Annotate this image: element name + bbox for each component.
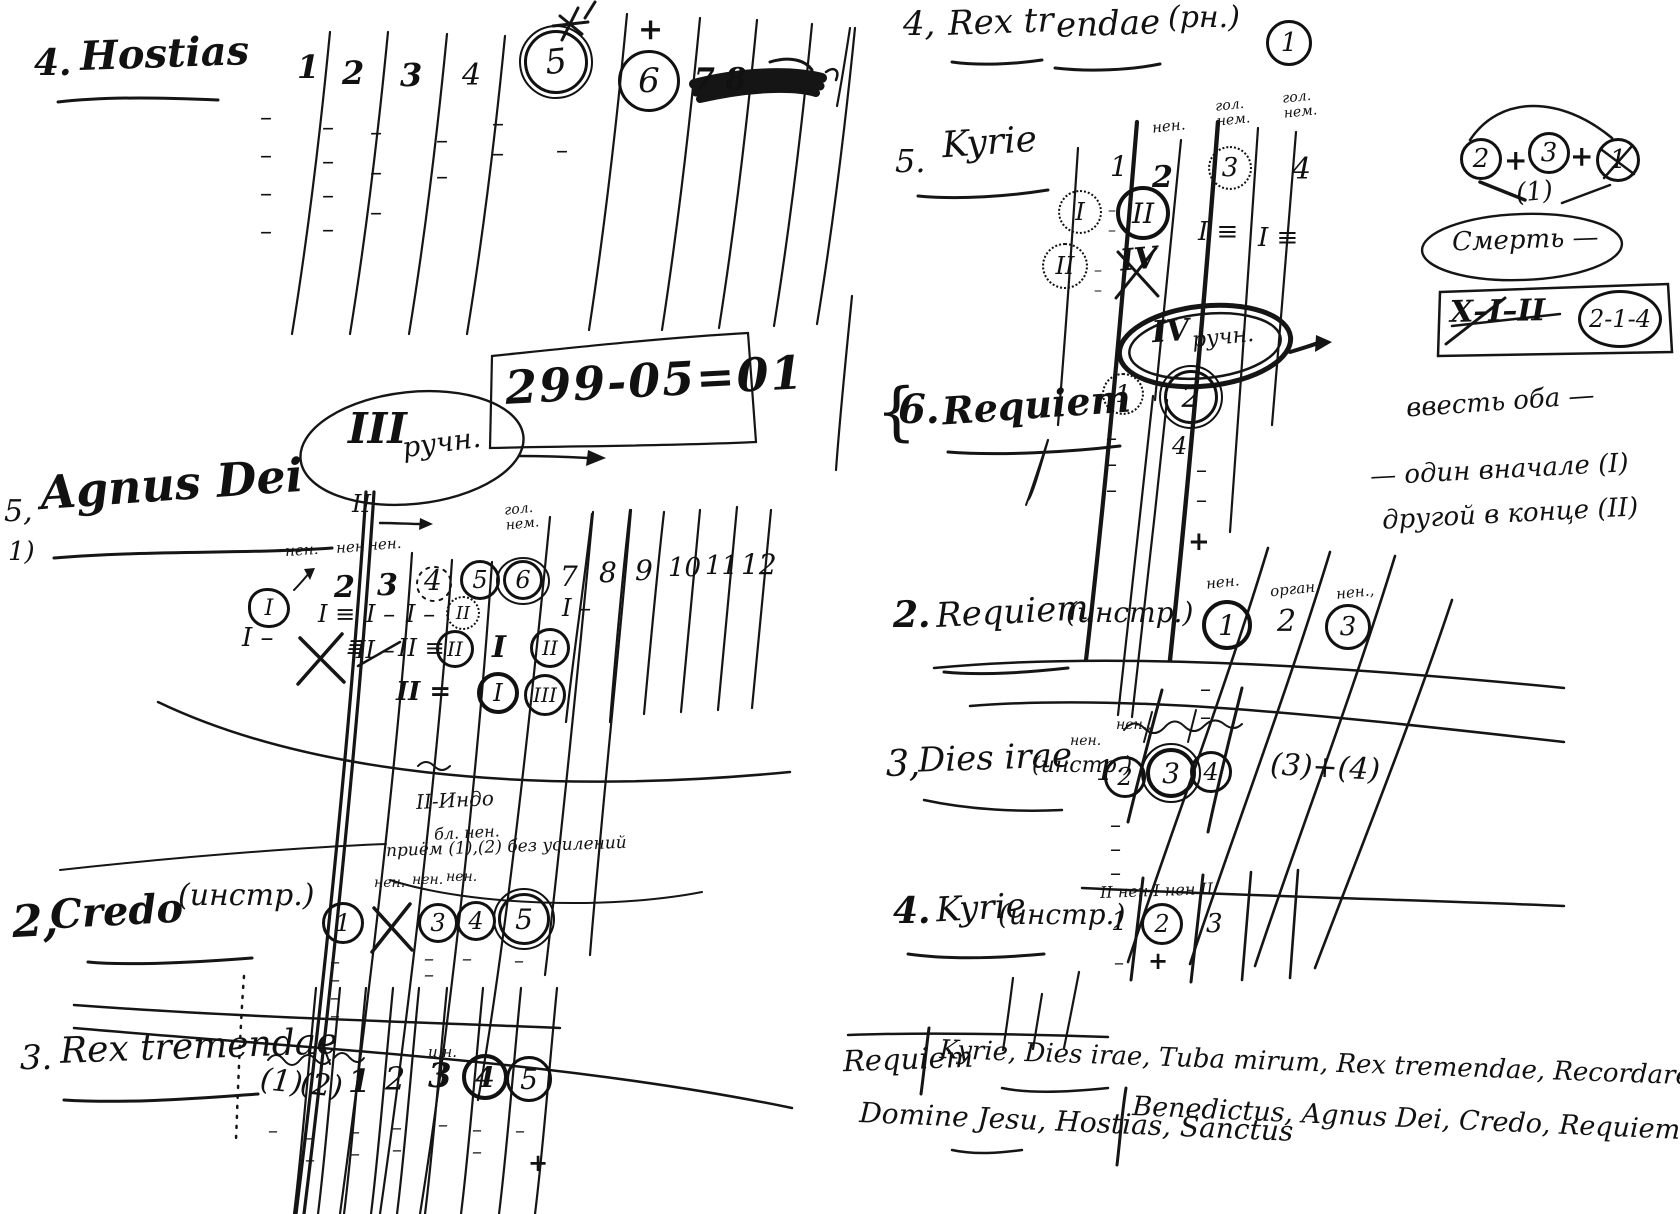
rex-item-6: 4 xyxy=(475,1061,494,1094)
credo-dashes-3: – – xyxy=(424,950,434,982)
mid-note-line1: II-Индо xyxy=(415,788,494,814)
kyrie5-mark-3: I ≡ xyxy=(1198,218,1238,246)
agnus-mark-7: I – xyxy=(562,596,591,622)
agnus-mark-5: I xyxy=(492,632,506,664)
rex4-badge-circled: 1 xyxy=(1266,20,1312,66)
agnus-bubble-I: I xyxy=(248,588,290,628)
credo-item-4-circled: 4 xyxy=(456,901,496,941)
dies3-extra: (3)+(4) xyxy=(1269,749,1381,787)
kyrie4-item-3: 3 xyxy=(1206,910,1223,938)
kyrie5-col-3: 3 xyxy=(1222,153,1239,183)
kyrie4-plus: + xyxy=(1148,948,1168,974)
agnus-col-5: 5 xyxy=(472,566,487,594)
credo-dashes-4: – xyxy=(462,948,472,970)
req6-dashes-1: – – – xyxy=(1106,426,1117,504)
kyrie4-paren: (инстр.) xyxy=(998,900,1125,930)
kyrie4-item-1: 1 xyxy=(1111,908,1128,936)
agnus-number-bottom: 1) xyxy=(8,538,35,566)
kyrie5-col-4: 4 xyxy=(1292,154,1311,186)
agnus-mark-45a-circled: II xyxy=(446,596,480,630)
req6-item-1: 1 xyxy=(1115,380,1130,408)
credo-label-1: нен. xyxy=(374,876,405,891)
rex-dashes-1: – xyxy=(268,1120,278,1142)
agnus-mark-2a: I ≡ xyxy=(318,602,355,628)
sum-b: 3 xyxy=(1541,138,1558,168)
death-label: Смерть — xyxy=(1452,223,1599,256)
hostias-col-3: 3 xyxy=(400,58,422,93)
kyrie5-number: 5. xyxy=(895,144,926,179)
dies3-item-2-circled: 2 xyxy=(1104,756,1146,798)
agnus-col-8: 8 xyxy=(599,558,617,588)
rex-item-2: (2) xyxy=(298,1068,344,1105)
rex-dashes-5: – xyxy=(438,1114,448,1136)
box-circle-sequence: 2-1-4 xyxy=(1578,290,1662,348)
hostias-col-2: 2 xyxy=(342,56,364,91)
credo-item-3: 3 xyxy=(430,909,445,937)
agnus-mark-4a: I – xyxy=(406,602,435,628)
hostias-dashes-6: – xyxy=(556,138,568,164)
rex-item-7-circled: 5 xyxy=(506,1056,552,1102)
agnus-mark-6-circled: III xyxy=(524,674,566,716)
kyrie5-label-2: нен. xyxy=(1151,116,1186,136)
agnus-col-9: 9 xyxy=(635,556,653,586)
dies3-item-3-circled: 3 xyxy=(1146,748,1196,798)
sum-a-circled: 2 xyxy=(1460,138,1502,180)
credo-title: Credo xyxy=(49,887,184,937)
rex-dashes-4: – – xyxy=(392,1116,402,1160)
hostias-dashes-3: – – – xyxy=(370,112,382,232)
req6-item-2: 2 xyxy=(1181,380,1200,415)
dies3-item-2: 2 xyxy=(1117,763,1132,791)
credo-item-1-circled: 1 xyxy=(322,902,364,944)
credo-item-1: 1 xyxy=(335,909,350,937)
agnus-col-6: 6 xyxy=(515,566,530,594)
dies3-item-4-circled: 4 xyxy=(1190,751,1232,793)
agnus-label-col6: гол. нем. xyxy=(504,500,541,534)
agnus-mark-45b: II xyxy=(447,637,463,661)
kyrie5-roman-IV-crossed: IV xyxy=(1119,242,1159,278)
rex-dashes-3: – – xyxy=(350,1120,360,1164)
agnus-mark-3a: I – xyxy=(366,602,395,628)
kyrie5-title: Kyrie xyxy=(941,121,1038,166)
rex-item-1: (1) xyxy=(258,1064,304,1101)
agnus-col-12: 12 xyxy=(741,550,777,580)
oval3-roman: III xyxy=(348,406,407,451)
sum-c-circled-crossed: 1 xyxy=(1596,138,1640,182)
bubble-arrow xyxy=(294,568,315,590)
dies3-number: 3, xyxy=(886,746,920,785)
sum-plus-2: + xyxy=(1570,142,1593,172)
agnus-mark-56: II xyxy=(542,636,558,660)
agnus-mark-45b-circled: II xyxy=(436,630,474,668)
manuscript-page: 4. Hostias 1 2 3 4 5 + 6 7 8 – – – – – –… xyxy=(0,0,1680,1214)
req6-item-2-circled: 2 xyxy=(1164,370,1218,424)
req2-dashes: – – xyxy=(1200,676,1211,732)
kyrie4-dash: – xyxy=(1114,952,1124,974)
agnus-label-1: нен. xyxy=(284,541,318,559)
kyrie5-roman-II-dashes: – – xyxy=(1094,260,1102,300)
agnus-col-10: 10 xyxy=(668,554,701,582)
rex-dashes-7: – xyxy=(515,1120,525,1142)
kyrie5-roman-II2-circled: II xyxy=(1116,186,1170,240)
credo-dashes-1: – – – – xyxy=(330,952,340,1024)
agnus-mark-6: III xyxy=(533,683,557,707)
rex-item-6-circled: 4 xyxy=(462,1054,508,1100)
kyrie5-roman-II: II xyxy=(1056,252,1075,280)
credo-paren: (инстр.) xyxy=(178,880,314,912)
req2-label-1: нен. xyxy=(1205,572,1240,592)
rex4-number: 4, xyxy=(903,6,935,43)
req2-number: 2. xyxy=(893,596,931,635)
box-sequence: X–I–II xyxy=(1450,295,1546,329)
kyrie5-roman-I-dashes: – – xyxy=(1108,200,1116,240)
agnus-col-6-circled: 6 xyxy=(503,560,543,600)
sum-c: 1 xyxy=(1610,145,1627,175)
agnus-col-4: 4 xyxy=(424,566,442,596)
hostias-title: Hostias xyxy=(79,29,250,78)
kyrie4-item-2: 2 xyxy=(1154,910,1169,938)
agnus-label-3: нен. xyxy=(367,535,401,553)
req2-label-3: нен., xyxy=(1335,582,1375,602)
kyrie5-roman-I-circled: I xyxy=(1058,190,1102,234)
agnus-col-5-circled: 5 xyxy=(460,560,500,600)
sum-a: 2 xyxy=(1473,144,1490,174)
req2-item-2: 2 xyxy=(1277,606,1296,638)
sum-plus-1: + xyxy=(1504,146,1527,176)
box-circle-text: 2-1-4 xyxy=(1589,305,1651,333)
dies3-item-3: 3 xyxy=(1162,757,1180,790)
agnus-mark-45a: II xyxy=(456,603,470,624)
req2-item-3-circled: 3 xyxy=(1325,604,1371,650)
credo-dashes-5: – xyxy=(514,950,524,972)
rex-number: 3. xyxy=(20,1040,52,1077)
kyrie5-roman-II-circled: II xyxy=(1042,243,1088,289)
req2-item-1: 1 xyxy=(1218,609,1236,642)
rex4-title-1: Rex tr xyxy=(947,2,1054,42)
agnus-col-11: 11 xyxy=(705,552,738,580)
rex-plus: + xyxy=(528,1150,548,1176)
hostias-col-5: 5 xyxy=(543,41,569,83)
dies3-label-1: нен. xyxy=(1070,734,1101,749)
kyrie5-roman-I: I xyxy=(1075,198,1084,226)
hostias-col-6: 6 xyxy=(638,61,660,101)
rex4-paren: (рн.) xyxy=(1168,2,1240,34)
req6-mark-4: 4· xyxy=(1172,434,1195,460)
credo-item-4: 4 xyxy=(468,907,483,935)
agnus-col-7: 7 xyxy=(560,562,578,592)
credo-label-3: нен. xyxy=(446,870,477,885)
rex-item-5: 3 xyxy=(428,1058,452,1095)
hostias-dashes-1: – – – – xyxy=(260,98,272,250)
credo-label-2: нен. xyxy=(412,873,443,888)
rex-dashes-2: – – xyxy=(305,1126,315,1170)
rex-dashes-6: – – xyxy=(472,1118,482,1162)
hostias-dashes-5: – – xyxy=(492,108,504,168)
agnus-mark-3b: II – xyxy=(356,638,395,664)
hostias-col-1: 1 xyxy=(297,50,319,85)
hostias-col-4: 4 xyxy=(462,60,481,92)
kyrie5-roman-II2: II xyxy=(1132,197,1154,230)
dies3-item-4: 4 xyxy=(1203,758,1218,786)
sum-below: (1) xyxy=(1515,176,1554,207)
req6-item-1-circled: 1 xyxy=(1102,373,1144,415)
req6-plus: + xyxy=(1188,528,1210,556)
kyrie5-label-4: гол. нем. xyxy=(1282,88,1319,122)
rex4-title-2: endae xyxy=(1055,4,1160,44)
hostias-dashes-4: – – xyxy=(436,122,448,194)
req2-paren: (инстр.) xyxy=(1066,598,1193,628)
hostias-number: 4. xyxy=(34,44,72,83)
agnus-label-2: нен xyxy=(335,538,365,556)
hostias-crossed-cols: 7 8 xyxy=(694,64,746,96)
dies3-label-2: нен., xyxy=(1116,718,1152,733)
rex-item-4: 2 xyxy=(385,1062,405,1097)
req6-oval-roman: IV xyxy=(1151,315,1190,350)
hostias-col-6-circled: 6 xyxy=(618,50,680,112)
kyrie5-col-3-circled: 3 xyxy=(1208,146,1252,190)
agnus-number-top: 5, xyxy=(4,496,33,528)
rex-item-3: 1 xyxy=(348,1064,370,1099)
credo-item-3-circled: 3 xyxy=(418,903,458,943)
manual-II-mark: II xyxy=(352,492,371,518)
agnus-mark-56-circled: II xyxy=(530,628,570,668)
req6-dashes-2: – – xyxy=(1196,456,1207,516)
kyrie4-item-2-circled: 2 xyxy=(1141,903,1183,945)
req2-item-3: 3 xyxy=(1340,612,1357,642)
kyrie4-header: II нен I нен II xyxy=(1100,880,1214,901)
agnus-mark-56b: I xyxy=(493,679,502,707)
kyrie4-number: 4. xyxy=(893,892,931,931)
dies3-dashes: – – – xyxy=(1110,814,1121,886)
kyrie5-mark-4: I ≡ xyxy=(1258,224,1298,252)
hostias-plus-mark: + xyxy=(638,14,663,46)
agnus-col-3: 3 xyxy=(377,570,398,602)
kyrie5-label-3: гол. нем. xyxy=(1215,96,1252,130)
agnus-bubble-roman: I xyxy=(265,596,274,621)
agnus-bubble-mark: I – xyxy=(242,624,274,652)
credo-item-5: 5 xyxy=(515,903,533,936)
hostias-dashes-2: – – – – xyxy=(322,110,334,246)
credo-item-5-circled: 5 xyxy=(498,893,550,945)
sum-b-circled: 3 xyxy=(1528,132,1570,174)
req2-item-1-circled: 1 xyxy=(1202,600,1252,650)
req6-number: 6. xyxy=(898,388,940,431)
agnus-mark-56b-circled: I xyxy=(477,672,519,714)
agnus-mark-4c: II = xyxy=(396,678,451,706)
rex-item-7: 5 xyxy=(520,1063,538,1096)
kyrie5-col-1: 1 xyxy=(1110,152,1128,182)
rex4-badge: 1 xyxy=(1281,28,1298,58)
